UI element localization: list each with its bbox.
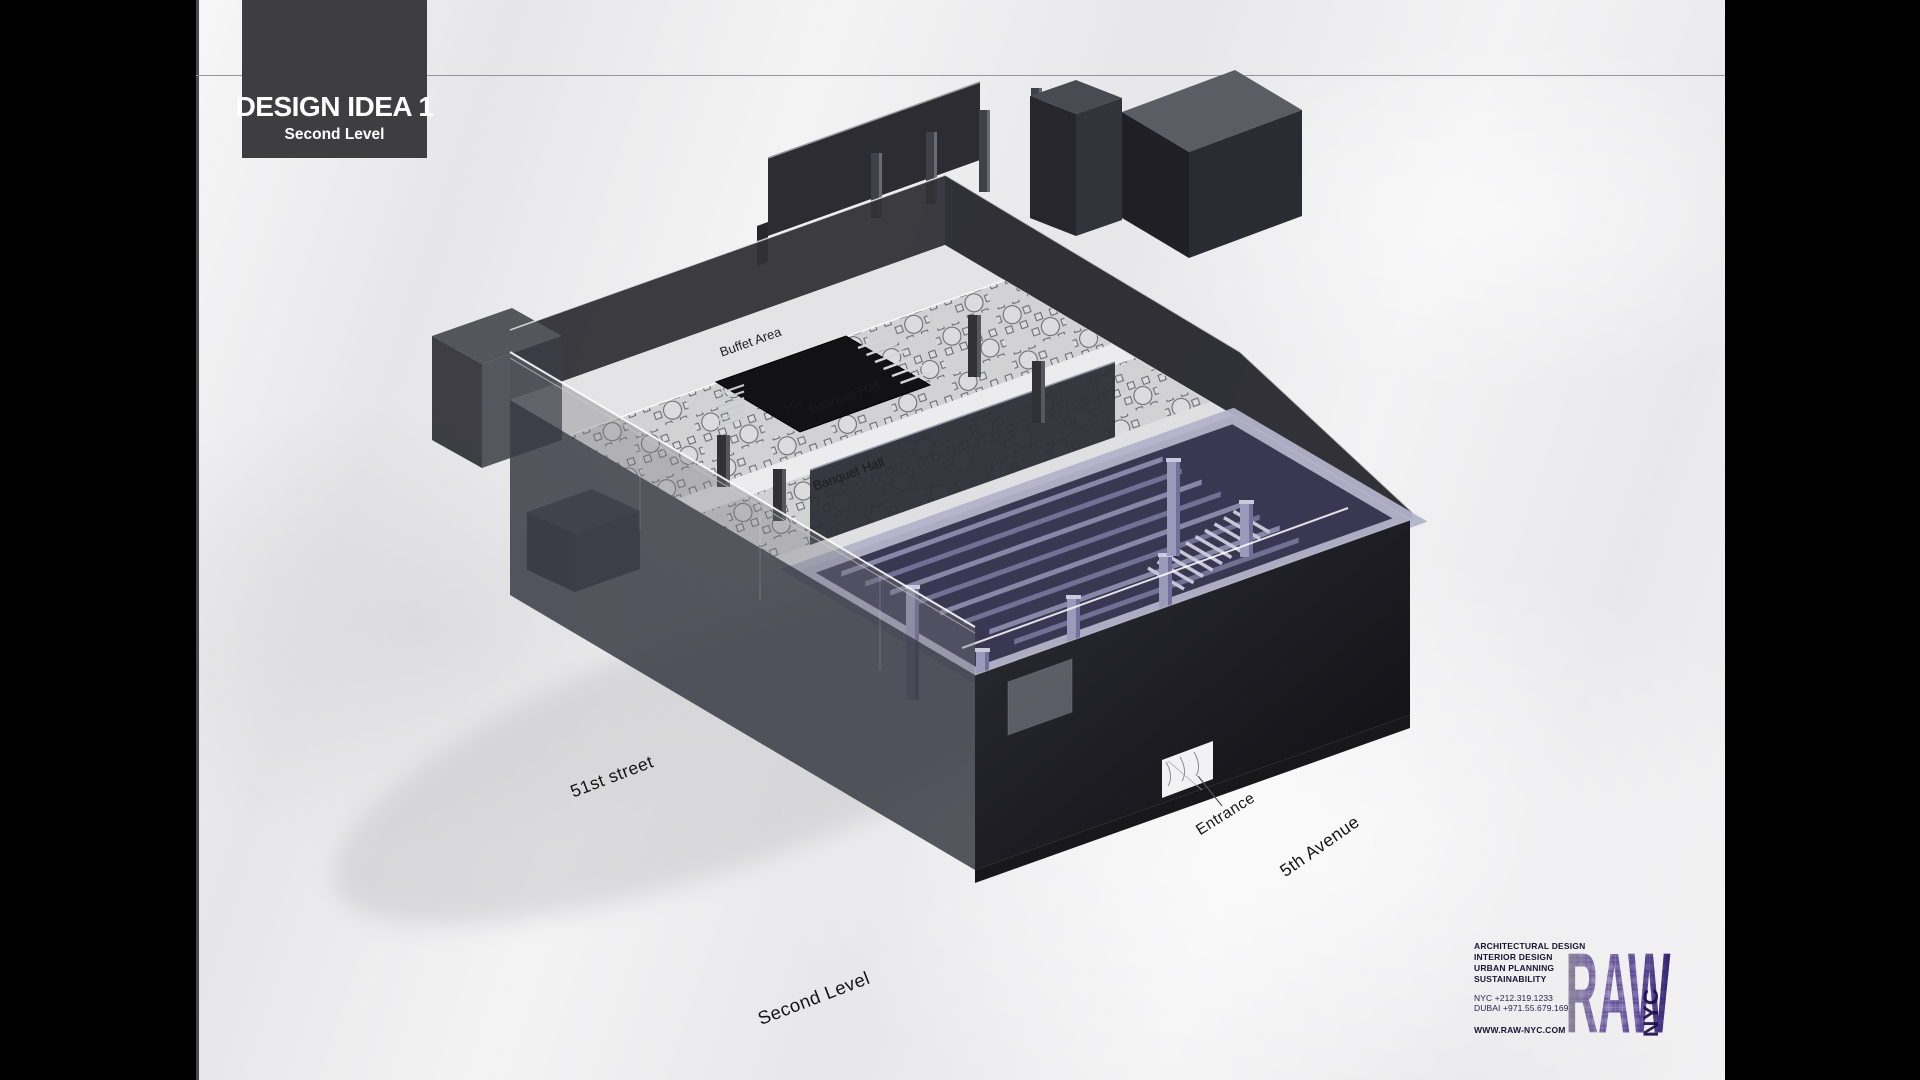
slide-title: DESIGN IDEA 1 (236, 91, 434, 123)
label-second-level: Second Level (755, 967, 873, 1029)
slide-stage: DESIGN IDEA 1 Second Level (0, 0, 1920, 1080)
label-5th-avenue: 5th Avenue (1276, 811, 1363, 880)
rooftop-tower (1030, 80, 1122, 236)
building-3d-model: Buffet Area Stair Banquet Hall Banquet H… (0, 0, 1920, 1080)
raw-logo: RAW RAW NYC (1563, 943, 1675, 1040)
rooftop-wing (1122, 70, 1302, 258)
firm-logo-block: ARCHITECTURAL DESIGN INTERIOR DESIGN URB… (1474, 941, 1684, 1041)
title-block: DESIGN IDEA 1 Second Level (242, 0, 427, 158)
slide-subtitle: Second Level (285, 126, 385, 144)
raw-logo-nyc-text: NYC (1639, 989, 1663, 1037)
